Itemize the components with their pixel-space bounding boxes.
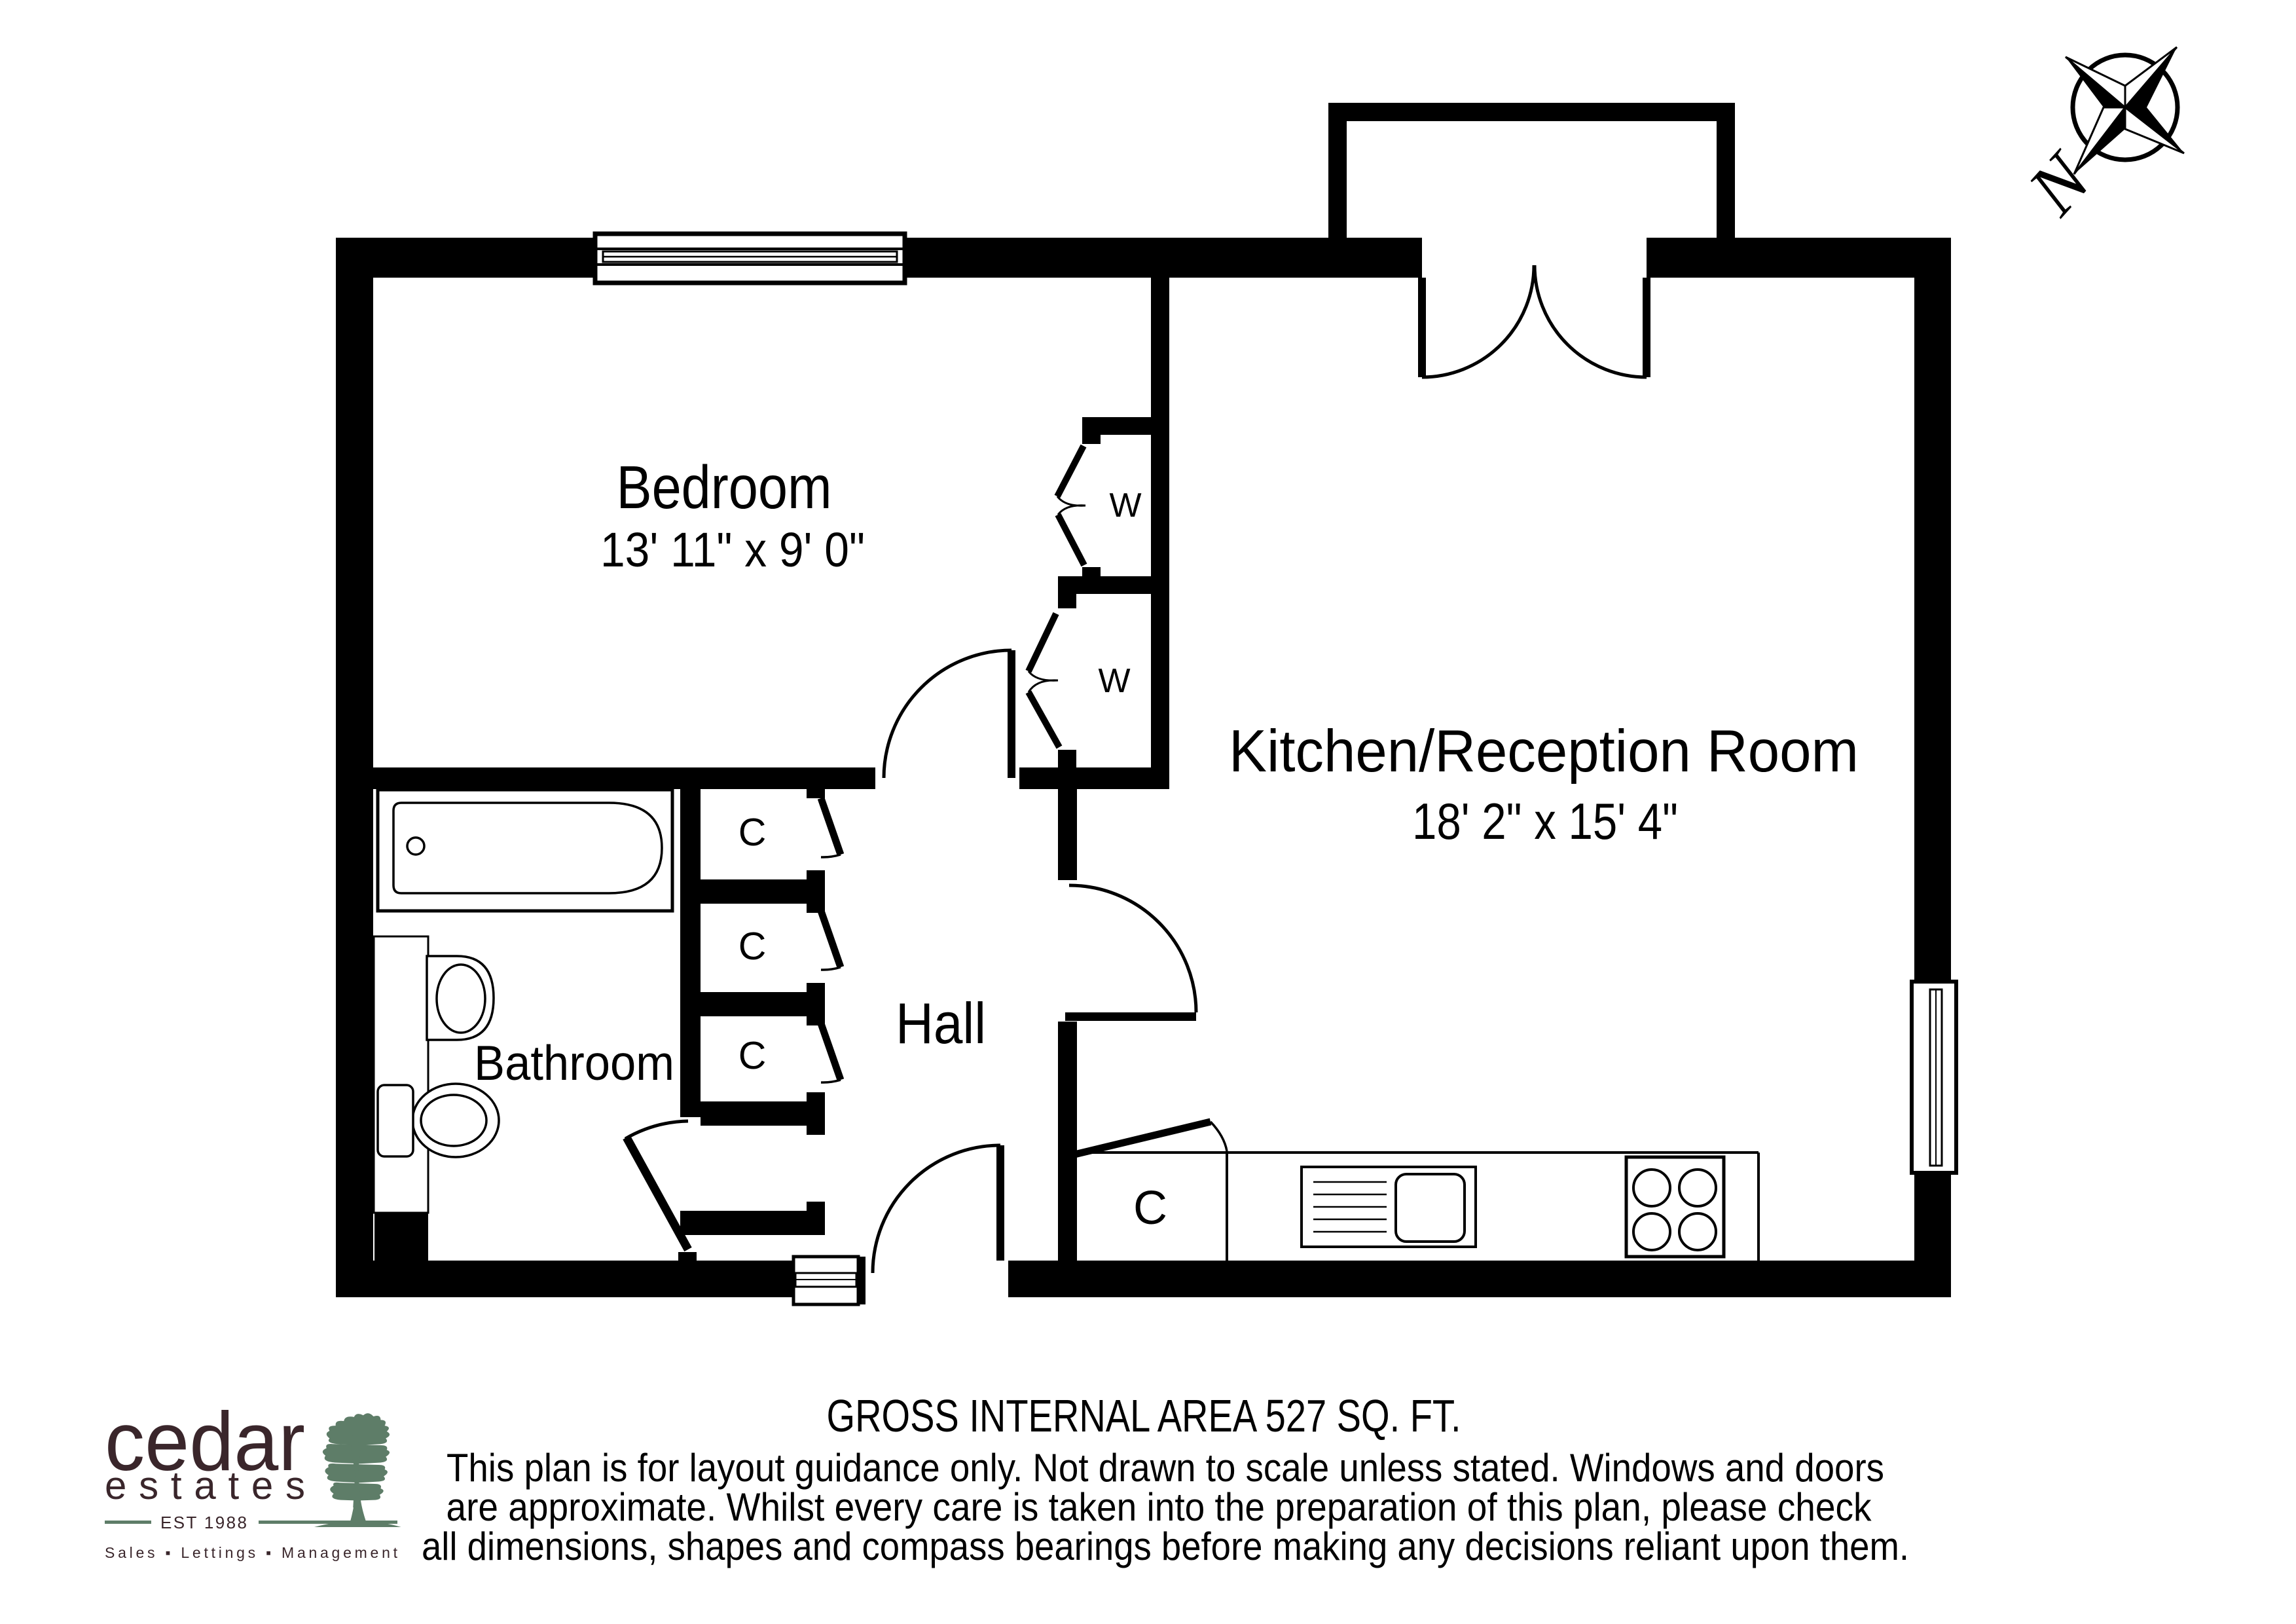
svg-text:Kitchen/Reception Room: Kitchen/Reception Room (1229, 718, 1859, 784)
svg-text:W: W (1109, 487, 1141, 525)
svg-text:Hall: Hall (896, 991, 986, 1056)
svg-text:all dimensions, shapes and com: all dimensions, shapes and compass beari… (422, 1524, 1909, 1568)
svg-text:GROSS INTERNAL AREA 527 SQ. FT: GROSS INTERNAL AREA 527 SQ. FT. (827, 1390, 1461, 1441)
svg-text:18' 2" x 15' 4": 18' 2" x 15' 4" (1412, 792, 1678, 850)
svg-text:Bedroom: Bedroom (617, 453, 832, 521)
svg-text:are approximate. Whilst every: are approximate. Whilst every care is ta… (446, 1485, 1872, 1529)
svg-text:13' 11" x 9' 0": 13' 11" x 9' 0" (600, 523, 865, 577)
svg-text:W: W (1098, 662, 1130, 700)
svg-text:C: C (738, 925, 767, 968)
svg-text:EST 1988: EST 1988 (160, 1513, 247, 1532)
svg-text:C: C (1133, 1182, 1167, 1234)
svg-text:This plan is for layout guidan: This plan is for layout guidance only. N… (446, 1446, 1884, 1490)
svg-text:C: C (738, 1034, 767, 1077)
svg-text:C: C (738, 811, 767, 854)
svg-text:Bathroom: Bathroom (474, 1035, 674, 1090)
